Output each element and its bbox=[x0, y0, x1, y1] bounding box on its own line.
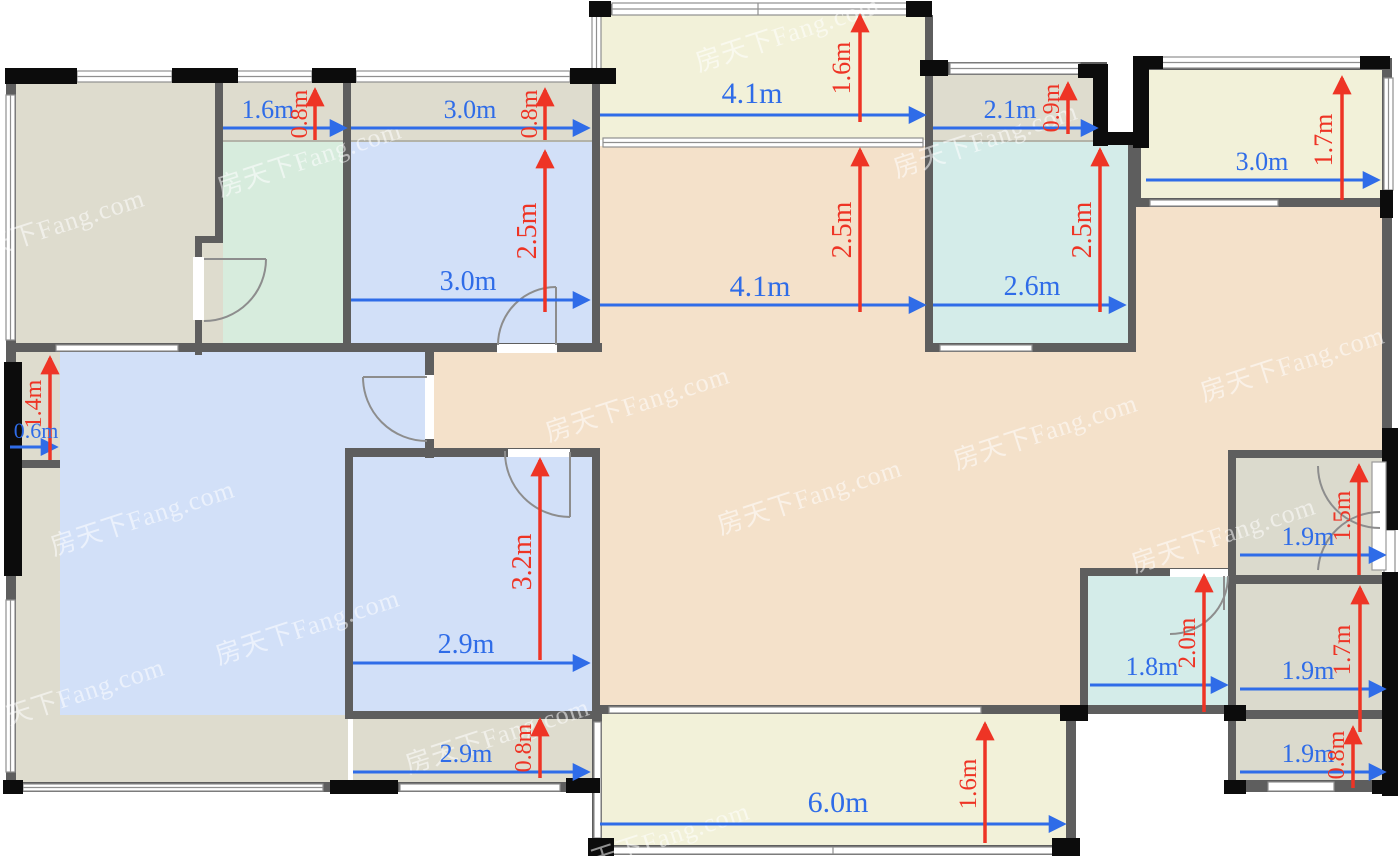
dim-label-v: 0.8m bbox=[287, 89, 313, 138]
dim-label-v: 0.8m bbox=[517, 89, 543, 138]
door-opening bbox=[508, 449, 570, 457]
wall-segment bbox=[1080, 568, 1088, 714]
wall-segment-black bbox=[1372, 780, 1394, 794]
dim-label-h: 2.9m bbox=[440, 739, 493, 768]
dim-label-v: 1.7m bbox=[1309, 114, 1338, 167]
wall-segment-black bbox=[906, 1, 932, 17]
dim-label-v: 2.5m bbox=[827, 201, 858, 258]
dim-label-h: 1.9m bbox=[1282, 656, 1335, 685]
wall-segment bbox=[1228, 575, 1390, 584]
dim-label-v: 1.6m bbox=[955, 758, 982, 809]
dim-label-h: 2.9m bbox=[438, 629, 495, 660]
wall-segment-black bbox=[1224, 705, 1246, 721]
window bbox=[1268, 782, 1334, 791]
floorplan-page: 房天下Fang.com 房天下Fang.com 房天下Fang.com 房天下F… bbox=[0, 0, 1400, 860]
living-area-upper bbox=[600, 146, 925, 352]
room-blue-bottom bbox=[353, 457, 592, 711]
door-opening bbox=[1170, 569, 1228, 577]
dim-label-v: 2.5m bbox=[512, 202, 543, 259]
wall-segment-black bbox=[566, 778, 600, 793]
dim-label-v: 1.4m bbox=[21, 379, 47, 428]
wall-segment bbox=[1066, 711, 1076, 855]
wall-segment-black bbox=[172, 68, 238, 83]
door-opening bbox=[425, 375, 434, 439]
dim-label-h: 1.8m bbox=[1126, 652, 1179, 681]
wall-segment-black bbox=[1360, 56, 1390, 69]
wall-segment bbox=[1228, 450, 1390, 458]
dim-label-v: 0.9m bbox=[1039, 83, 1065, 132]
wall-segment bbox=[195, 236, 223, 243]
wall-segment-black bbox=[570, 68, 616, 84]
wall-segment-black bbox=[4, 362, 22, 576]
wall-segment bbox=[1228, 710, 1390, 719]
wall-segment bbox=[343, 72, 351, 352]
wall-segment-black bbox=[1380, 190, 1393, 218]
window bbox=[609, 707, 981, 713]
window bbox=[1150, 200, 1278, 206]
dim-label-h: 4.1m bbox=[730, 270, 791, 303]
wall-segment bbox=[592, 448, 600, 719]
dim-label-v: 0.8m bbox=[1324, 730, 1350, 779]
dim-label-h: 2.1m bbox=[984, 95, 1037, 124]
wall-segment-black bbox=[1052, 838, 1080, 856]
wall-segment-black bbox=[3, 780, 23, 794]
door-opening bbox=[497, 344, 557, 353]
wall-segment bbox=[345, 448, 353, 719]
dim-label-h: 1.9m bbox=[1282, 522, 1335, 551]
wall-segment bbox=[1228, 450, 1236, 790]
dim-label-h: 3.0m bbox=[440, 266, 497, 297]
dim-label-h: 6.0m bbox=[808, 786, 869, 819]
dim-label-v: 3.2m bbox=[507, 533, 538, 590]
wall-segment-black bbox=[1133, 56, 1149, 148]
wall-segment bbox=[215, 72, 223, 243]
window bbox=[400, 784, 560, 791]
wall-segment-black bbox=[1133, 56, 1163, 69]
dim-label-h: 3.0m bbox=[444, 95, 497, 124]
dim-label-h: 2.6m bbox=[1004, 271, 1061, 302]
wall-segment-black bbox=[1382, 572, 1398, 796]
dim-label-v: 1.6m bbox=[827, 42, 856, 95]
wall-segment-black bbox=[312, 68, 356, 83]
window bbox=[56, 345, 178, 351]
floorplan-drawing: 房天下Fang.com 房天下Fang.com 房天下Fang.com 房天下F… bbox=[0, 0, 1400, 860]
wall-segment-black bbox=[589, 1, 611, 17]
window bbox=[940, 345, 1032, 351]
wall-segment-black bbox=[920, 60, 948, 76]
door-opening bbox=[193, 257, 204, 320]
dim-label-v: 2.5m bbox=[1067, 201, 1098, 258]
wall-segment-black bbox=[330, 780, 398, 794]
wall-segment-black bbox=[1224, 780, 1246, 794]
dim-label-h: 3.0m bbox=[1236, 147, 1289, 176]
dim-label-h: 4.1m bbox=[722, 77, 783, 110]
dim-label-v: 2.0m bbox=[1174, 617, 1201, 668]
wall-segment-black bbox=[5, 68, 77, 84]
dim-label-v: 1.7m bbox=[1329, 624, 1356, 675]
living-area-right bbox=[1136, 207, 1382, 352]
dim-label-v: 1.5m bbox=[1329, 490, 1356, 541]
dim-label-v: 0.8m bbox=[511, 723, 537, 772]
wall-segment-black bbox=[1060, 705, 1088, 721]
